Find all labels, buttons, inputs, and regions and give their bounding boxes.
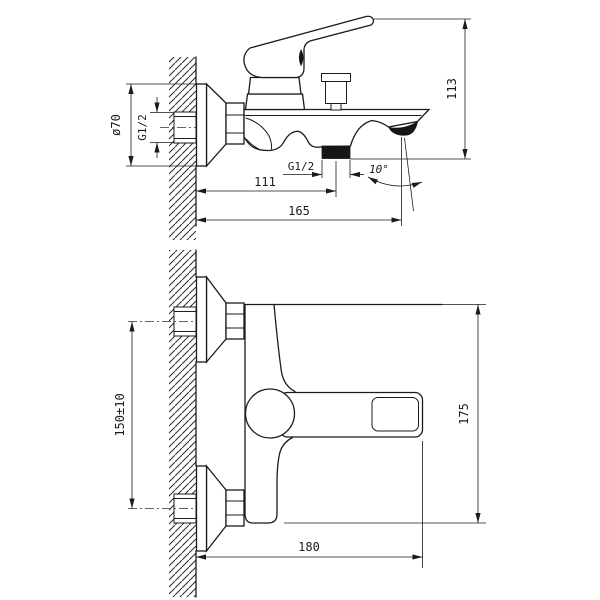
dim-label-height: 113 — [445, 78, 459, 100]
wall-section — [169, 57, 196, 240]
angle-arc — [368, 177, 422, 186]
connector-nut — [226, 303, 244, 339]
connector-cone — [207, 277, 227, 362]
dim-label-front-width: 180 — [298, 540, 320, 554]
flow-angled-line — [405, 138, 414, 211]
knob-stem — [331, 104, 341, 111]
dim-label-shower-thread: G1/2 — [288, 160, 315, 173]
wall-section-front — [169, 250, 196, 597]
knob-body — [326, 82, 347, 104]
eccentric-connector — [197, 84, 245, 166]
side-view: 10° ø70 G1/2 113 — [109, 16, 471, 240]
connector-flange — [197, 466, 207, 551]
body-right-edge-lower — [268, 438, 293, 524]
connector-cone — [207, 466, 227, 551]
knob-cap — [322, 74, 351, 82]
connector-flange — [197, 84, 207, 166]
dim-label-spout-reach: 165 — [288, 204, 310, 218]
dimension-height-113: 113 — [350, 19, 471, 159]
body-base — [246, 94, 305, 110]
dimension-spout-reach: 165 — [196, 204, 402, 220]
faucet-drawing-canvas: 10° ø70 G1/2 113 — [0, 0, 600, 600]
dim-label-front-height: 175 — [457, 403, 471, 425]
front-view: 150±10 175 180 — [113, 250, 486, 597]
mixer-body — [244, 16, 374, 109]
faucet-body-front — [245, 305, 442, 524]
diverter-knob — [322, 74, 351, 111]
shower-outlet-thread — [322, 146, 350, 159]
connector-nut — [226, 490, 244, 526]
dim-label-inlet-thread: G1/2 — [136, 114, 149, 141]
handle-lever-front — [280, 393, 423, 438]
dim-label-spout-angle: 10° — [369, 163, 389, 176]
handle-ball-joint — [246, 389, 295, 438]
technical-drawing: 10° ø70 G1/2 113 — [0, 0, 600, 600]
cartridge-ring — [249, 78, 302, 95]
lower-eccentric-connector — [197, 466, 245, 551]
body-right-edge-upper — [274, 305, 295, 392]
upper-eccentric-connector — [197, 277, 245, 362]
dim-label-wall-to-outlet: 111 — [254, 175, 276, 189]
dimension-wall-to-outlet: 111 — [196, 161, 336, 197]
wall-hatch — [169, 57, 196, 240]
flow-angle-annotation: 10° — [368, 137, 422, 226]
connector-flange — [197, 277, 207, 362]
dim-label-flange-diameter: ø70 — [109, 114, 123, 136]
dimension-inlet-centers: 150±10 — [113, 322, 132, 509]
wall-hatch — [169, 250, 196, 597]
connector-cone — [207, 84, 227, 166]
handle-lever — [244, 16, 374, 77]
dimension-shower-thread: G1/2 — [283, 160, 364, 178]
dim-label-inlet-centers: 150±10 — [113, 393, 127, 436]
connector-nut — [226, 103, 244, 144]
